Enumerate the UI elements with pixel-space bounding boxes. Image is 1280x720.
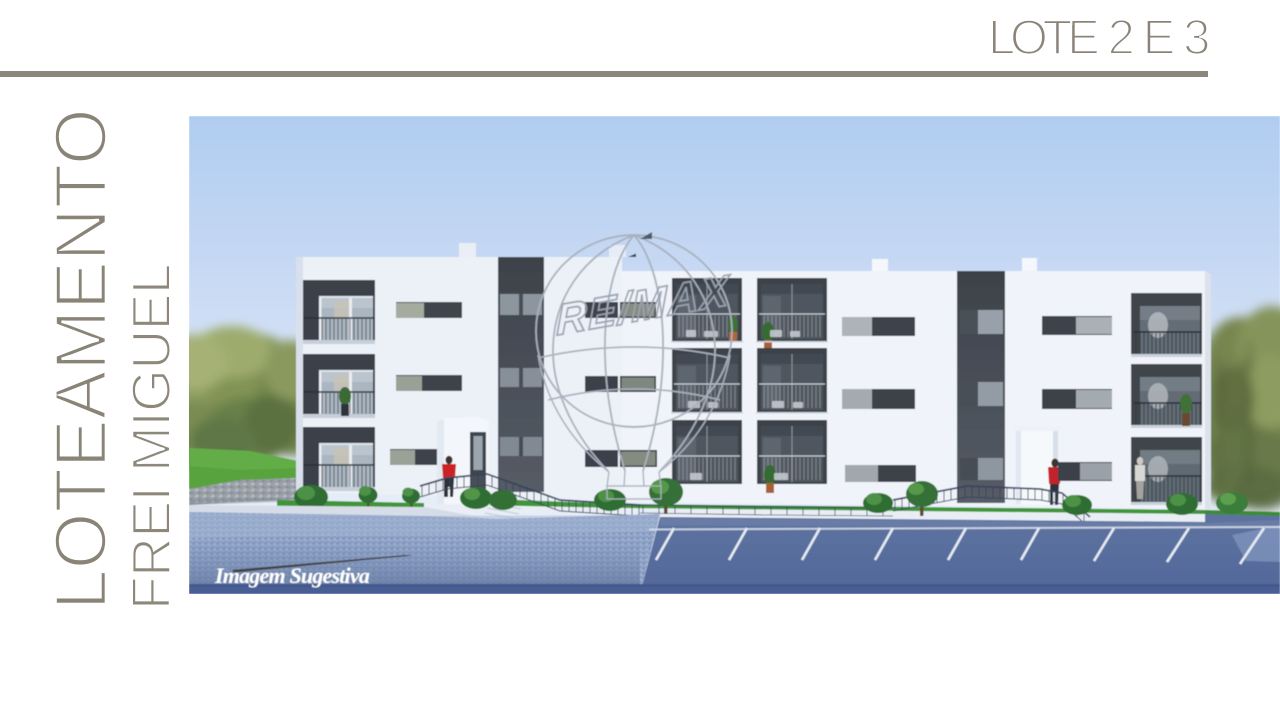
svg-text:Imagem Sugestiva: Imagem Sugestiva bbox=[214, 563, 370, 588]
svg-text:LOTE 2 E 3: LOTE 2 E 3 bbox=[988, 11, 1209, 65]
svg-text:LOTEAMENTO: LOTEAMENTO bbox=[41, 108, 122, 610]
svg-text:FREI MIGUEL: FREI MIGUEL bbox=[120, 264, 182, 610]
